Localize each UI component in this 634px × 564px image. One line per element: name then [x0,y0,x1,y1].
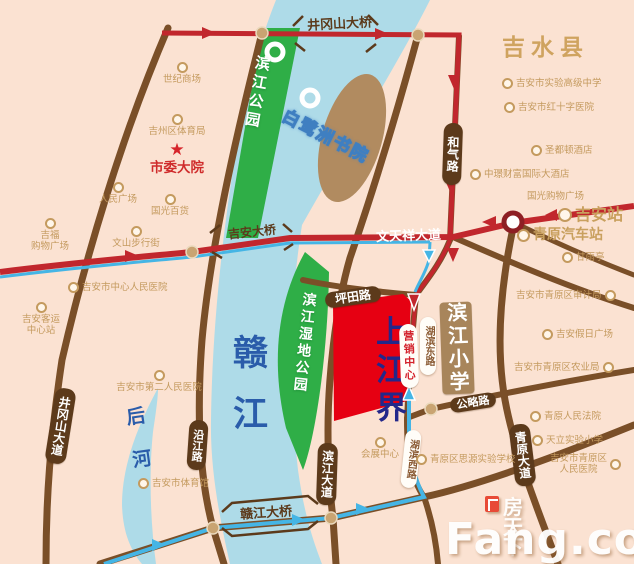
bridge-label-jinggangshan: 井冈山大桥 [307,11,373,33]
road-label-heqi: 和气路 [442,123,463,186]
hotel-icon [470,169,481,180]
road-label-wentianxiang: 文天祥大道 [376,224,442,245]
train-station-icon [558,208,572,222]
square-icon [542,329,553,340]
poi-agriculture-bureau: 吉安市青原区农业局 [514,362,614,373]
poi-audit-bureau: 吉安市青原区审计局 [516,290,616,301]
gov-icon [605,290,616,301]
poi-renmin-square: 人民广场 [94,182,142,205]
poi-sports-center: 吉安市体育馆 [138,478,209,489]
poi-shiji-mall: 世纪商场 [152,62,212,85]
store-icon [562,252,573,263]
road-hubin [407,240,450,564]
poi-redcross-hospital: 吉安市红十字医院 [504,102,594,113]
poi-second-hospital: 吉安市第二人民医院 [116,370,202,393]
mall-icon [177,62,188,73]
poi-central-hospital: 吉安市中心人民医院 [68,282,168,293]
bridge-label-ganjiang: 赣江大桥 [239,500,292,523]
binjiang-primary-school-badge: 滨江小学 [439,301,474,394]
poi-qingyuan-court: 青原人民法院 [530,411,601,422]
marketing-center-badge: 营销中心 [399,324,419,389]
poi-siyuan-school: 青原区思源实验学校 [416,454,516,465]
poi-jifu-mall: 吉福 购物广场 [22,218,78,253]
star-icon: ★ [169,142,184,159]
watermark-en: Fang.com [445,518,634,562]
hospital-icon [68,282,79,293]
qingyuan-bus-station: 青原汽车站 [517,227,603,244]
poi-hotel-fortune: 中璟财富国际大酒店 [470,169,570,180]
school-icon [416,454,427,465]
street-icon [131,226,142,237]
poi-holiday-square: 吉安假日广场 [542,329,613,340]
road-label-yanjiang: 沿江路 [186,419,208,470]
stadium-icon [138,478,149,489]
real-estate-location-map: 吉水县 赣江 后河 上江界 滨江公园 滨江湿地公园 白鹭洲书院 滨江小学 营销中… [0,0,634,564]
station-label: 吉安站 [575,205,623,224]
poi-qingyuan-hospital: 吉安市青原区 人民医院 [550,453,621,476]
school-icon [532,435,543,446]
poi-shiwei-compound: ★ 市委大院 [146,142,208,176]
expo-icon [375,437,386,448]
county-label: 吉水县 [502,28,589,62]
poi-ganyuting: 甘雨亭 [562,252,605,263]
poi-guoguang-mall: 国光购物广场 [527,191,584,202]
poi-tianli-school: 天立实验小学 [532,435,603,446]
school-icon [502,78,513,89]
road-label-hubin-east: 湖滨东路 [420,317,436,375]
river-name-label: 赣江 [222,334,273,456]
station-label: 青原汽车站 [533,227,603,244]
hospital-icon [610,459,621,470]
hotel-icon [531,145,542,156]
poi-guoguang-dept: 国光百货 [146,194,194,217]
hospital-icon [154,370,165,381]
jian-railway-station: 吉安站 [558,205,623,224]
hospital-icon [504,102,515,113]
road-label-binjiang-avenue: 滨江大道 [316,443,338,506]
bus-station-icon [517,229,530,242]
poi-wenshan-street: 文山步行街 [106,226,166,249]
fang-logo-icon [485,496,499,512]
square-icon [113,182,124,193]
store-icon [165,194,176,205]
mall-icon [45,218,56,229]
poi-bus-center-station: 吉安客运 中心站 [12,302,70,337]
bus-icon [36,302,47,313]
poi-jizhou-sports-bureau: 吉州区体育局 [144,114,210,137]
poi-hotel-shengdu: 圣都顿酒店 [531,145,593,156]
poi-exhibition-center: 会展中心 [354,437,406,460]
gov-icon [172,114,183,125]
gov-icon [603,362,614,373]
court-icon [530,411,541,422]
poi-shiyan-school: 吉安市实验高级中学 [502,78,602,89]
